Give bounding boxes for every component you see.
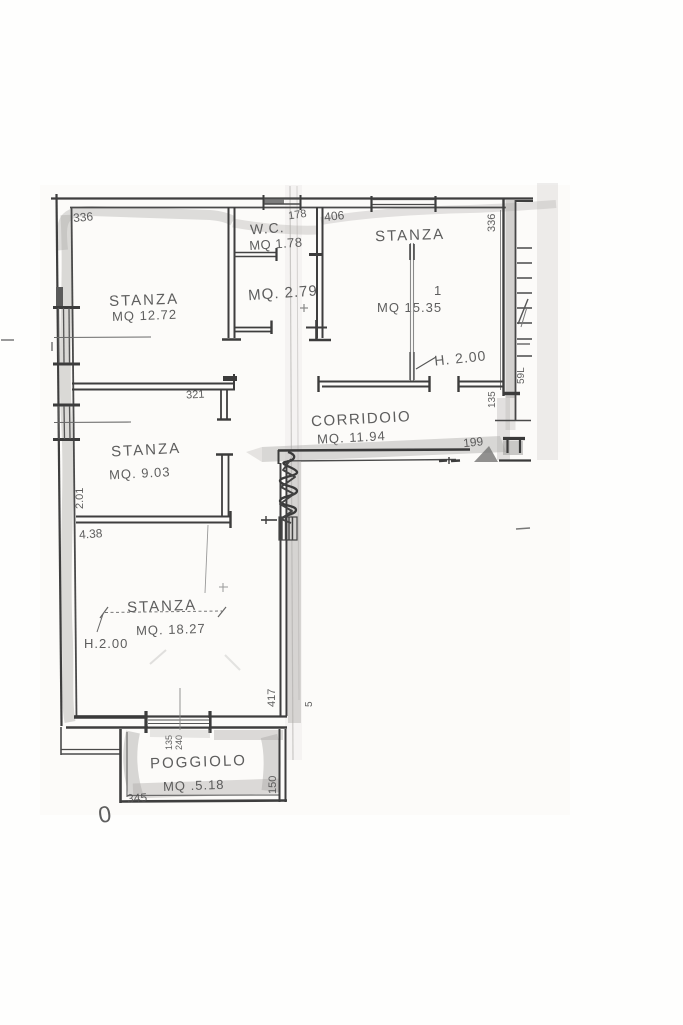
svg-text:MQ 12.72: MQ 12.72 <box>112 307 178 324</box>
svg-text:336: 336 <box>486 214 498 232</box>
svg-text:STANZA: STANZA <box>375 226 446 245</box>
svg-text:1: 1 <box>434 283 441 298</box>
svg-text:2.01: 2.01 <box>74 488 86 509</box>
svg-text:135: 135 <box>487 391 498 408</box>
svg-text:150: 150 <box>267 776 279 794</box>
svg-text:345: 345 <box>127 790 148 805</box>
svg-text:MQ. 9.03: MQ. 9.03 <box>109 464 171 482</box>
svg-text:59L: 59L <box>516 367 527 384</box>
svg-text:417: 417 <box>266 689 278 707</box>
svg-text:W.C.: W.C. <box>250 219 285 237</box>
svg-text:STANZA: STANZA <box>127 597 198 616</box>
svg-text:MQ. 18.27: MQ. 18.27 <box>136 621 206 638</box>
svg-text:321: 321 <box>186 389 205 402</box>
svg-text:336: 336 <box>73 209 94 225</box>
svg-text:H.2.00: H.2.00 <box>84 636 128 651</box>
svg-text:199: 199 <box>462 434 484 450</box>
svg-text:5: 5 <box>304 701 315 707</box>
svg-text:4.38: 4.38 <box>79 526 104 542</box>
svg-text:178: 178 <box>288 208 308 222</box>
svg-text:MQ 15.35: MQ 15.35 <box>377 300 442 315</box>
svg-text:POGGIOLO: POGGIOLO <box>150 752 247 772</box>
svg-text:406: 406 <box>324 208 346 224</box>
svg-text:MQ .5.18: MQ .5.18 <box>163 777 225 794</box>
